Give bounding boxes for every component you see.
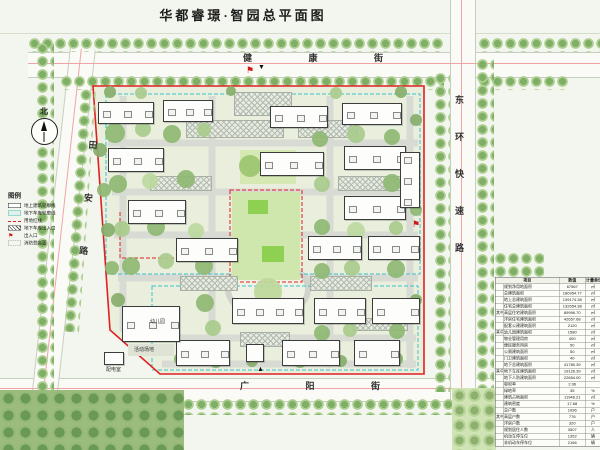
legend: 图例 地上建筑轮廓线地下车库轮廓线用地红线地下车库出入口⚑出入口消防登高面	[8, 190, 83, 247]
table-cell-item: 地下总建筑面积	[504, 362, 560, 368]
table-cell-item: 建筑占地面积	[504, 395, 560, 401]
table-cell-item: 规划净用地面积	[504, 284, 560, 290]
table-cell-group	[496, 284, 504, 290]
table-cell-item: 规划居住人数	[504, 427, 560, 433]
table-cell-group	[496, 343, 504, 349]
table-cell-value: 2166	[560, 440, 586, 446]
legend-item-label: 地下车库轮廓线	[24, 210, 56, 217]
north-needle-icon	[41, 121, 47, 131]
entrance-flag-icon: ⚑	[412, 220, 420, 229]
table-cell-value: 40	[560, 356, 586, 362]
table-cell-item: 住宅总建筑面积	[504, 304, 560, 310]
table-cell-unit: ㎡	[586, 369, 600, 375]
table-cell-group	[496, 304, 504, 310]
table-cell-value: 132654.38	[560, 304, 586, 310]
table-cell-value: 776	[560, 414, 586, 420]
table-cell-unit: ㎡	[586, 395, 600, 401]
north-gate-marker: ▼	[258, 64, 265, 71]
legend-item: 地上建筑轮廓线	[8, 202, 83, 210]
table-cell-group	[496, 427, 504, 433]
table-cell-item: 地下人防建筑面积	[504, 375, 560, 381]
north-arrow: 北	[26, 106, 62, 145]
table-cell-group	[496, 421, 504, 427]
tree-mass-bottom-left	[0, 390, 184, 450]
legend-item: 地下车库轮廓线	[8, 209, 83, 217]
table-cell-unit: 辆	[586, 440, 600, 446]
table-cell-group	[496, 349, 504, 355]
site-text-label: 幼儿园	[150, 318, 165, 325]
table-cell-item: 总建筑面积	[504, 291, 560, 297]
table-cell-unit: ㎡	[586, 336, 600, 342]
table-cell-unit: 辆	[586, 434, 600, 440]
legend-item-label: 地下车库出入口	[24, 225, 56, 232]
legend-item: 地下车库出入口	[8, 224, 83, 232]
table-cell-item: 总户数	[504, 408, 560, 414]
north-circle	[31, 118, 58, 145]
sym-flag-icon: ⚑	[8, 233, 21, 238]
table-cell-group	[496, 388, 504, 394]
table-cell-value: 19126.39	[560, 369, 586, 375]
table-cell-group	[496, 336, 504, 342]
table-cell-value: 1096	[560, 408, 586, 414]
table-cell-value: 22654.00	[560, 375, 586, 381]
table-cell-value: 320	[560, 421, 586, 427]
site-area	[93, 86, 424, 374]
table-cell-group	[496, 317, 504, 323]
table-cell-value: 35	[560, 388, 586, 394]
table-cell-unit: ㎡	[586, 323, 600, 329]
table-cell-value: 50	[560, 343, 586, 349]
table-cell-group: 其中	[496, 330, 504, 336]
table-cell-value: 400	[560, 336, 586, 342]
table-cell-item: 配套公建建筑面积	[504, 323, 560, 329]
table-cell-value: 67567	[560, 284, 586, 290]
table-cell-group	[496, 323, 504, 329]
table-cell-value: 17.68	[560, 401, 586, 407]
table-cell-unit: ㎡	[586, 284, 600, 290]
site-plan-drawing: 华都睿璟·智园总平面图 健 康 街 广 阳 街 东环快速路 田安路 北 图例 地…	[0, 0, 600, 450]
table-cell-unit: 人	[586, 427, 600, 433]
table-cell-group: 其中	[496, 369, 504, 375]
north-label: 北	[26, 106, 62, 117]
table-cell-group	[496, 356, 504, 362]
table-cell-item: 高层住宅建筑面积	[504, 310, 560, 316]
table-cell-unit: ㎡	[586, 362, 600, 368]
legend-item: 消防登高面	[8, 239, 83, 247]
street-name-right: 东环快速路	[453, 95, 466, 280]
table-cell-unit: ㎡	[586, 343, 600, 349]
table-cell-group: 其中	[496, 414, 504, 420]
table-cell-value: 50	[560, 349, 586, 355]
table-row: 非机动车停车位2166辆	[496, 440, 600, 446]
table-cell-value: 42657.68	[560, 317, 586, 323]
table-cell-item: 地上总建筑面积	[504, 297, 560, 303]
table-cell-unit: ㎡	[586, 356, 600, 362]
table-cell-value: 89996.70	[560, 310, 586, 316]
table-cell-item: 幼儿园建筑面积	[504, 330, 560, 336]
table-cell-unit: ㎡	[586, 317, 600, 323]
street-name-bottom: 广 阳 街	[240, 379, 407, 392]
table-cell-item: 洋房户数	[504, 421, 560, 427]
table-cell-item: 建筑密度	[504, 401, 560, 407]
central-plaza-ring	[228, 262, 308, 316]
table-cell-item: 地下车库建筑面积	[504, 369, 560, 375]
table-cell-value: 2.06	[560, 382, 586, 388]
table-cell-unit: ㎡	[586, 330, 600, 336]
entrance-flag-icon: ⚑	[246, 66, 254, 75]
table-cell-group	[496, 297, 504, 303]
table-cell-group	[496, 395, 504, 401]
table-cell-unit	[586, 382, 600, 388]
sym-building-icon	[8, 203, 21, 208]
table-cell-item: 公厕建筑面积	[504, 349, 560, 355]
table-cell-group	[496, 382, 504, 388]
table-cell-item: 高层户数	[504, 414, 560, 420]
table-cell-value: 139174.38	[560, 297, 586, 303]
sym-redline-icon	[8, 221, 21, 222]
legend-item-label: 用地红线	[24, 217, 42, 224]
table-cell-item: 机动车停车位	[504, 434, 560, 440]
table-cell-unit: 户	[586, 408, 600, 414]
table-cell-value: 1580	[560, 330, 586, 336]
south-gate-marker: ▲	[257, 366, 264, 373]
table-cell-item: 容积率	[504, 382, 560, 388]
table-cell-group: 其中	[496, 310, 504, 316]
table-cell-value: 41780.39	[560, 362, 586, 368]
legend-item-label: 出入口	[24, 232, 38, 239]
table-cell-item: 物业管理用房	[504, 336, 560, 342]
legend-item-label: 消防登高面	[24, 240, 47, 247]
table-cell-unit: ㎡	[586, 304, 600, 310]
table-cell-value: 3507	[560, 427, 586, 433]
table-cell-group	[496, 434, 504, 440]
sym-garage-icon	[8, 210, 21, 215]
table-cell-group	[496, 440, 504, 446]
table-cell-group	[496, 362, 504, 368]
table-cell-group	[496, 375, 504, 381]
table-cell-item: 非机动车停车位	[504, 440, 560, 446]
table-cell-unit: ㎡	[586, 310, 600, 316]
table-cell-item: 便民服务用房	[504, 343, 560, 349]
legend-item: ⚑出入口	[8, 232, 83, 240]
table-cell-value: 1352	[560, 434, 586, 440]
table-cell-unit: ㎡	[586, 349, 600, 355]
legend-item-label: 地上建筑轮廓线	[24, 202, 56, 209]
table-cell-unit: ㎡	[586, 297, 600, 303]
table-cell-unit: 户	[586, 421, 600, 427]
site-text-label: 活动场地	[134, 346, 154, 353]
table-cell-group	[496, 408, 504, 414]
table-cell-group	[496, 291, 504, 297]
site-text-label: 配电室	[106, 366, 121, 373]
table-cell-value: 11948.21	[560, 395, 586, 401]
table-cell-unit: ㎡	[586, 375, 600, 381]
table-cell-unit: %	[586, 388, 600, 394]
table-cell-group	[496, 401, 504, 407]
table-cell-item: 洋房住宅建筑面积	[504, 317, 560, 323]
legend-title: 图例	[8, 190, 83, 200]
street-name-top: 健 康 街	[243, 51, 410, 64]
sym-garage-ent-icon	[8, 225, 21, 230]
table-cell-unit: %	[586, 401, 600, 407]
drawing-title: 华都睿璟·智园总平面图	[93, 5, 393, 24]
technical-indicators-table: 项目数值计量单位规划净用地面积67567㎡总建筑面积180954.77㎡地上总建…	[495, 277, 600, 447]
table-cell-item: 绿地率	[504, 388, 560, 394]
sym-fire-icon	[8, 240, 21, 245]
legend-item: 用地红线	[8, 217, 83, 225]
table-cell-unit: 户	[586, 414, 600, 420]
table-cell-value: 180954.77	[560, 291, 586, 297]
table-cell-item: 门卫建筑面积	[504, 356, 560, 362]
table-cell-value: 2120	[560, 323, 586, 329]
table-cell-unit: ㎡	[586, 291, 600, 297]
